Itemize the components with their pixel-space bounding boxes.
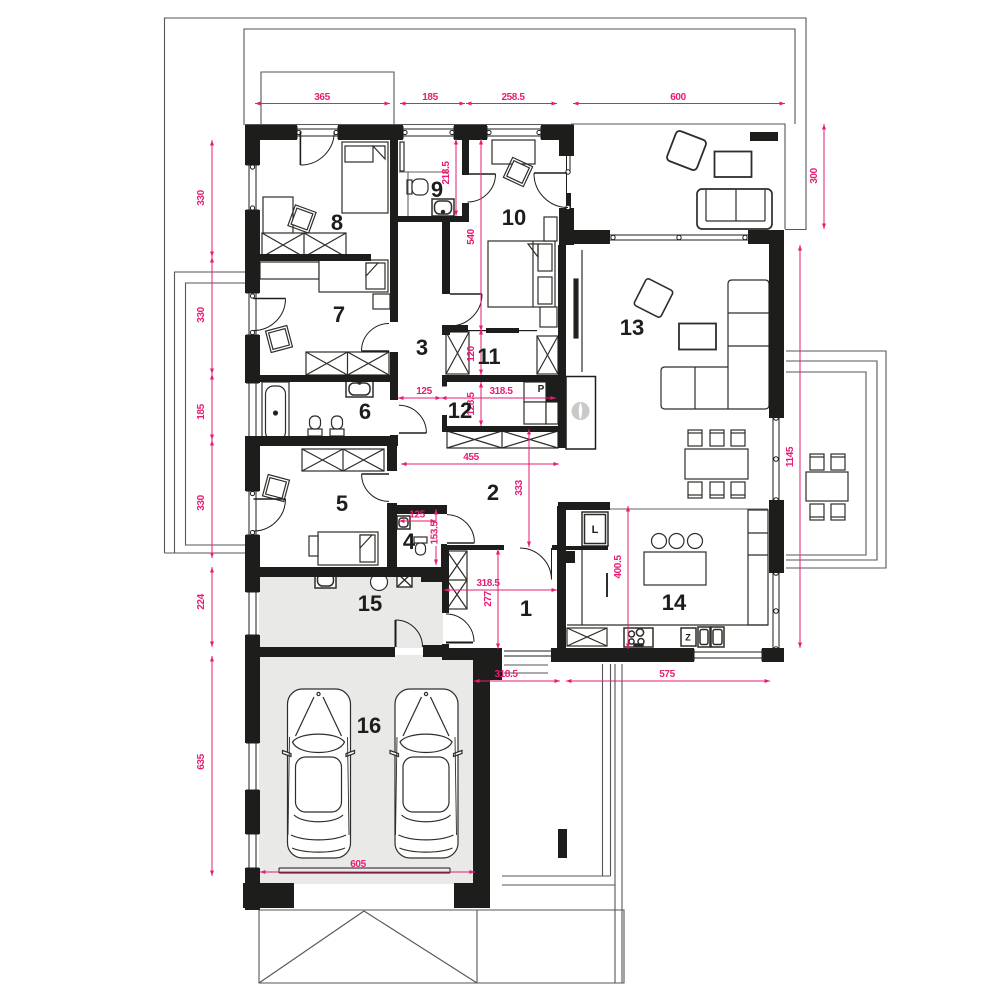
svg-text:224: 224 (196, 593, 207, 609)
svg-text:600: 600 (670, 92, 686, 103)
svg-text:7: 7 (333, 302, 345, 327)
svg-text:277: 277 (483, 590, 494, 606)
svg-text:14: 14 (662, 590, 687, 615)
svg-text:11: 11 (477, 344, 500, 369)
svg-text:185: 185 (196, 403, 207, 419)
svg-text:300: 300 (809, 167, 820, 183)
svg-text:16: 16 (357, 713, 381, 738)
svg-text:575: 575 (659, 669, 675, 680)
svg-text:540: 540 (466, 228, 477, 244)
svg-text:318.5: 318.5 (489, 386, 513, 397)
svg-text:333: 333 (514, 479, 525, 495)
svg-text:318.5: 318.5 (494, 669, 518, 680)
svg-text:125: 125 (409, 510, 425, 521)
svg-text:120: 120 (466, 345, 477, 361)
svg-text:1: 1 (520, 596, 532, 621)
svg-text:12: 12 (448, 398, 472, 423)
svg-text:318.5: 318.5 (476, 578, 500, 589)
svg-text:635: 635 (196, 753, 207, 769)
svg-text:13: 13 (620, 315, 644, 340)
svg-text:4: 4 (403, 529, 416, 554)
svg-text:1145: 1145 (785, 446, 796, 467)
svg-text:3: 3 (416, 335, 428, 360)
svg-text:15: 15 (358, 591, 382, 616)
svg-text:185: 185 (422, 92, 438, 103)
svg-text:455: 455 (463, 452, 479, 463)
svg-text:P: P (538, 384, 545, 395)
svg-text:365: 365 (314, 92, 330, 103)
svg-text:9: 9 (431, 177, 443, 202)
svg-text:125: 125 (416, 386, 432, 397)
svg-text:5: 5 (336, 491, 348, 516)
svg-text:Z: Z (685, 633, 691, 643)
svg-text:2: 2 (487, 480, 499, 505)
svg-text:330: 330 (196, 494, 207, 510)
svg-text:258.5: 258.5 (501, 92, 525, 103)
svg-text:10: 10 (502, 205, 526, 230)
svg-text:605: 605 (350, 859, 366, 870)
svg-text:L: L (592, 524, 599, 536)
svg-text:6: 6 (359, 399, 371, 424)
svg-text:8: 8 (331, 210, 343, 235)
svg-text:330: 330 (196, 189, 207, 205)
svg-text:400.5: 400.5 (613, 555, 624, 579)
svg-text:153.5: 153.5 (430, 521, 441, 545)
svg-text:330: 330 (196, 306, 207, 322)
